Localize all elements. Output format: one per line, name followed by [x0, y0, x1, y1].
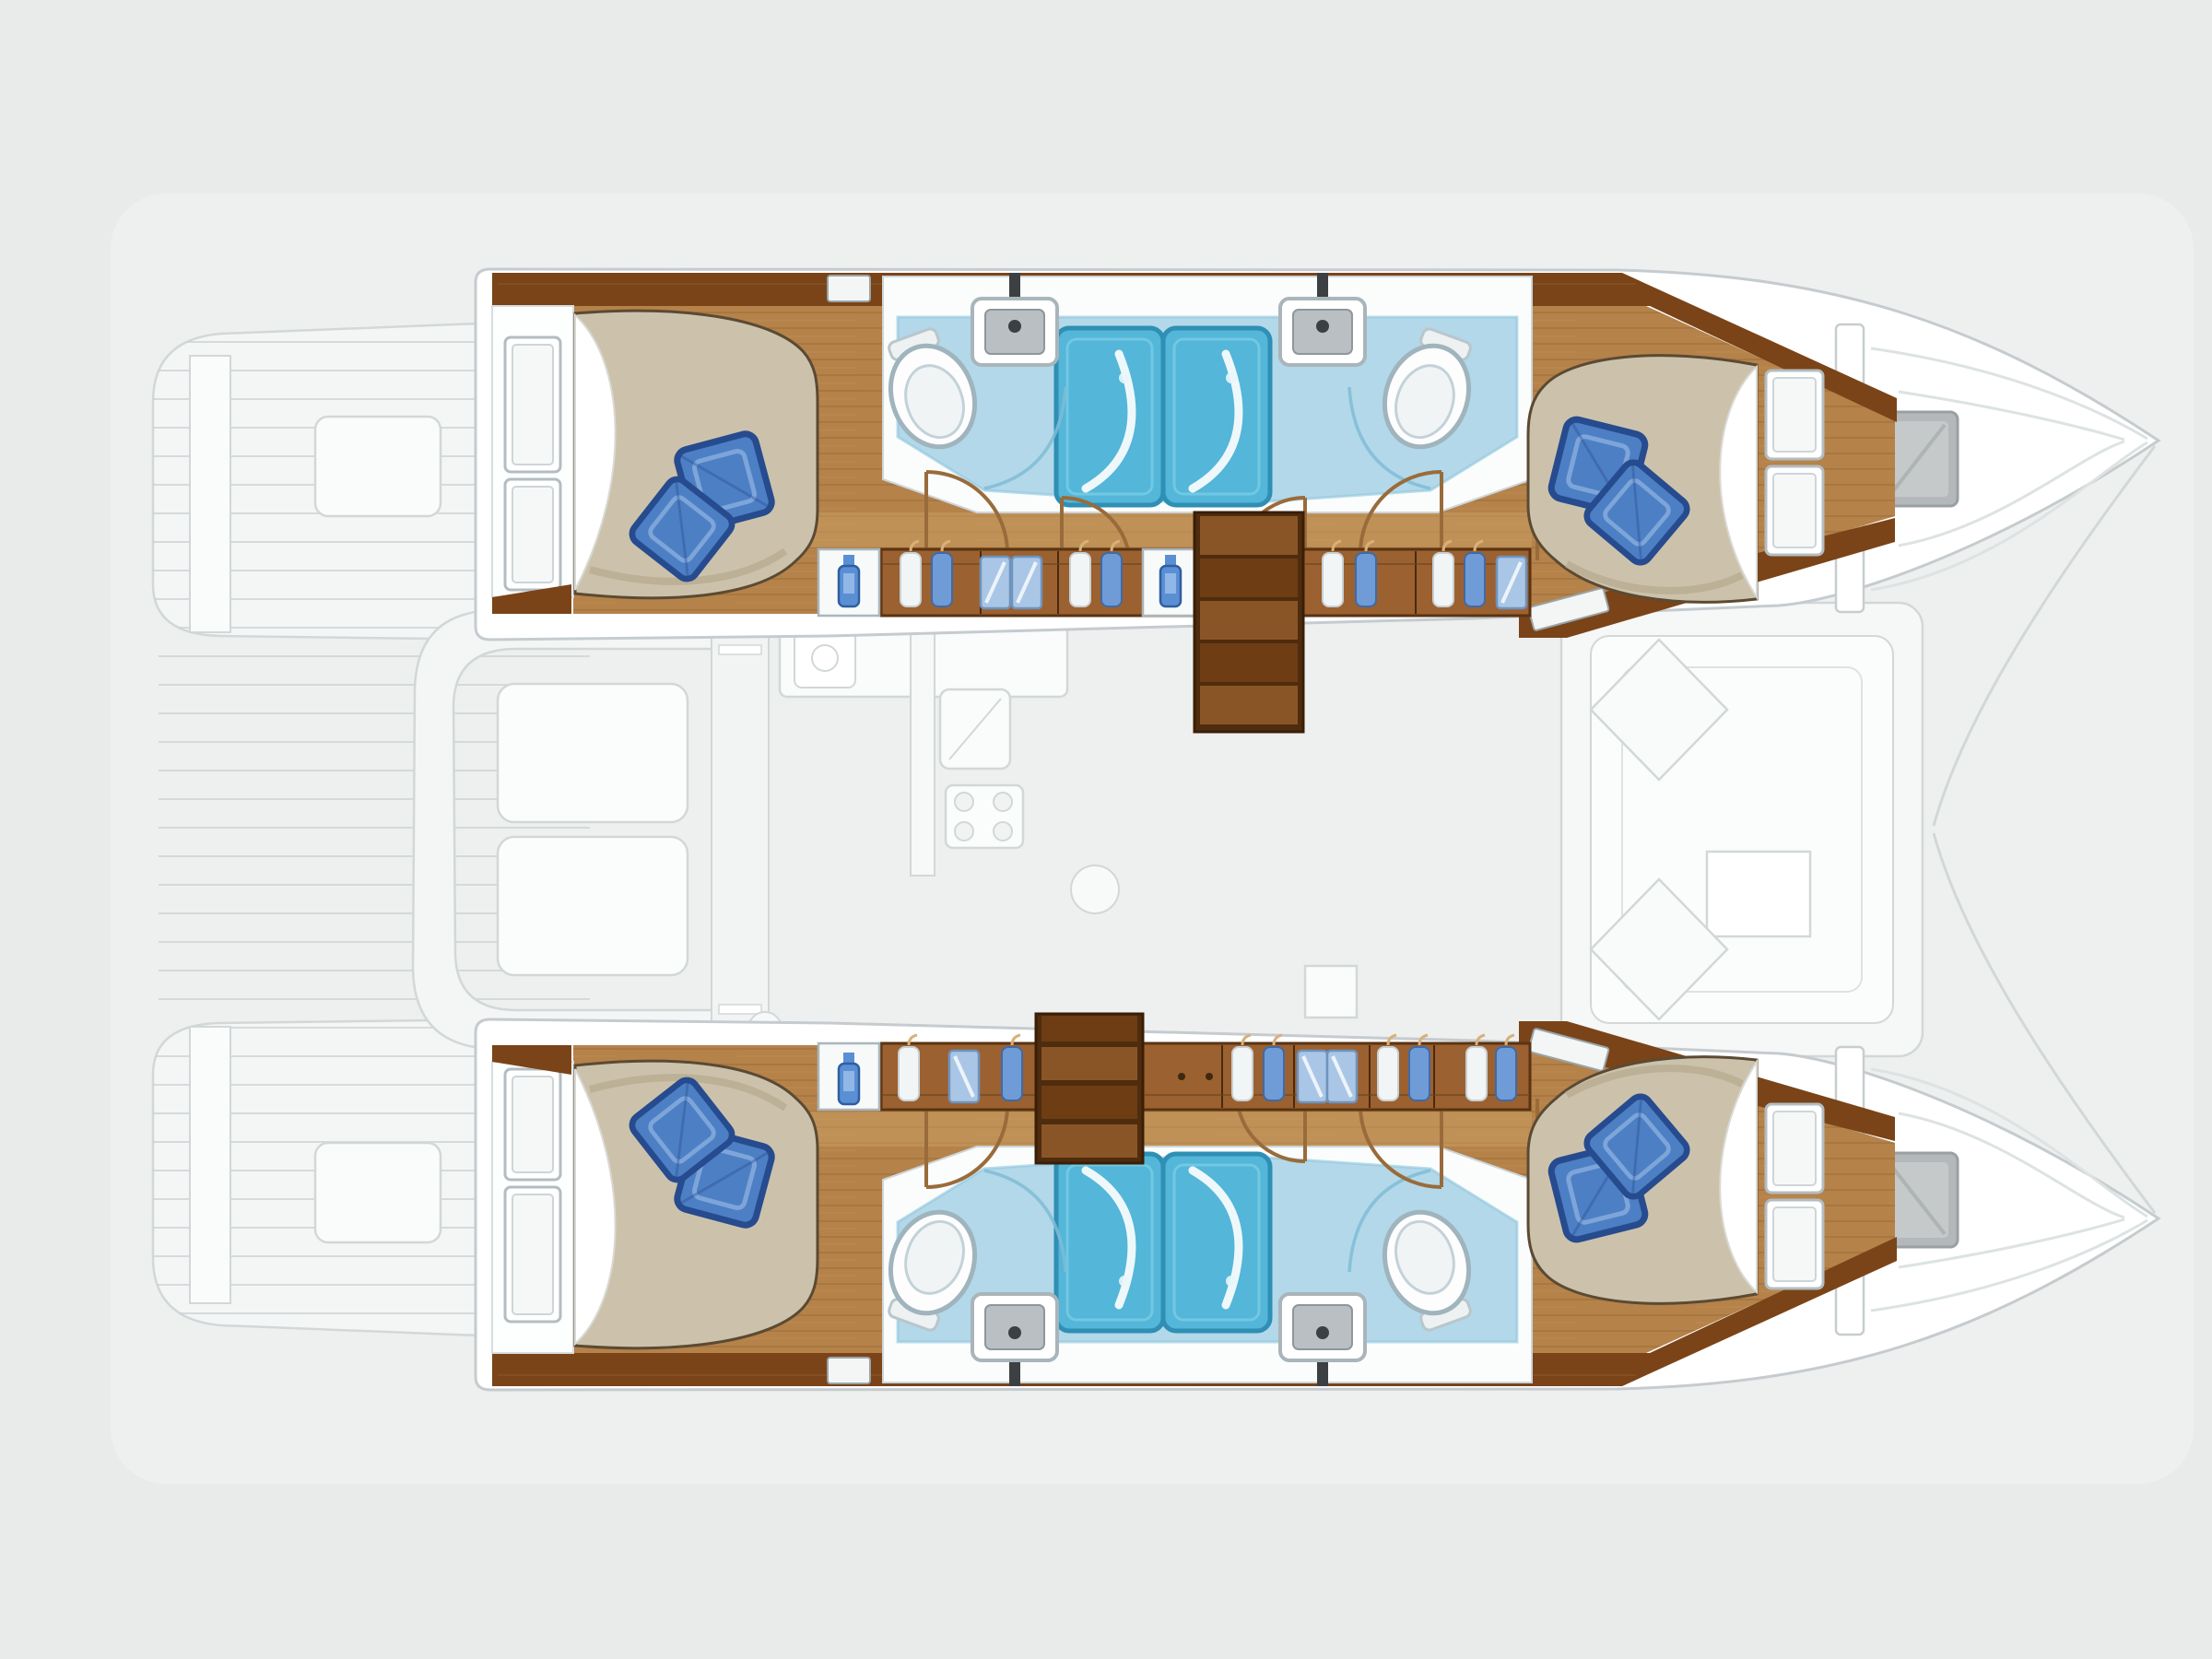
table-pedestal-ghost [1071, 865, 1119, 913]
port-wardrobe-row [818, 541, 1530, 616]
port-transom-step [190, 356, 230, 632]
starboard-transom-step [190, 1027, 230, 1303]
cabinet-handle [1206, 1073, 1213, 1080]
nav-desk [1707, 852, 1810, 936]
starboard-wardrobe-row [818, 1035, 1530, 1110]
catamaran-floor-plan [0, 0, 2212, 1659]
cockpit-table-aft [498, 684, 688, 822]
sliding-door-bottom [719, 1005, 761, 1014]
cabinet-handle [1178, 1073, 1185, 1080]
starboard-stern-locker [315, 1143, 441, 1242]
starboard-companionway-steps [1036, 1014, 1143, 1163]
cockpit-table-forward [498, 837, 688, 975]
sliding-door-top [719, 645, 761, 654]
port-stern-locker [315, 417, 441, 516]
floor-plan-page [0, 0, 2212, 1659]
galley-divider [911, 619, 935, 876]
mast-step [1305, 966, 1357, 1018]
walkway [712, 605, 769, 1054]
port-companionway-steps [1194, 512, 1303, 732]
